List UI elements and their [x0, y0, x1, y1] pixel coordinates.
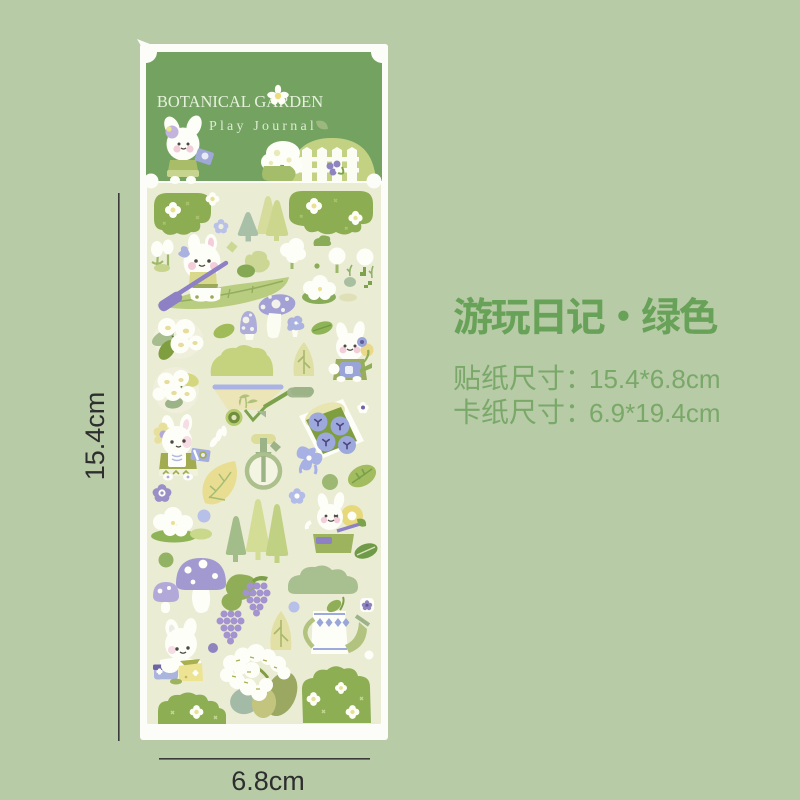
svg-text:Play Journal: Play Journal — [209, 119, 317, 134]
svg-text:15.4*6.8cm: 15.4*6.8cm — [589, 364, 721, 394]
svg-text:BOTANICAL GARDEN: BOTANICAL GARDEN — [157, 92, 323, 111]
svg-text:6.9*19.4cm: 6.9*19.4cm — [589, 398, 721, 428]
svg-text:6.8cm: 6.8cm — [231, 766, 305, 796]
svg-text:15.4cm: 15.4cm — [80, 392, 110, 481]
